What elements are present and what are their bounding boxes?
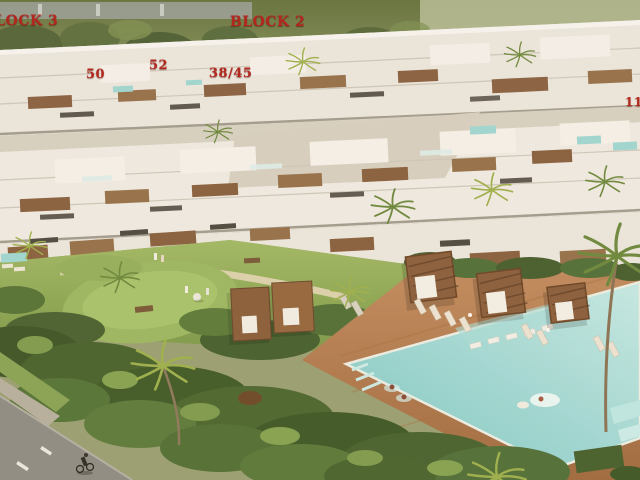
label-unit-52: 52 xyxy=(149,58,168,73)
aerial-render: BLOCK 3 BLOCK 2 50 52 38/45 11 xyxy=(0,0,640,480)
label-unit-50: 50 xyxy=(86,67,105,82)
label-block-2: BLOCK 2 xyxy=(230,14,305,30)
label-unit-11: 11 xyxy=(625,95,640,109)
label-unit-38-45: 38/45 xyxy=(209,66,252,81)
label-block-3: BLOCK 3 xyxy=(0,13,58,29)
